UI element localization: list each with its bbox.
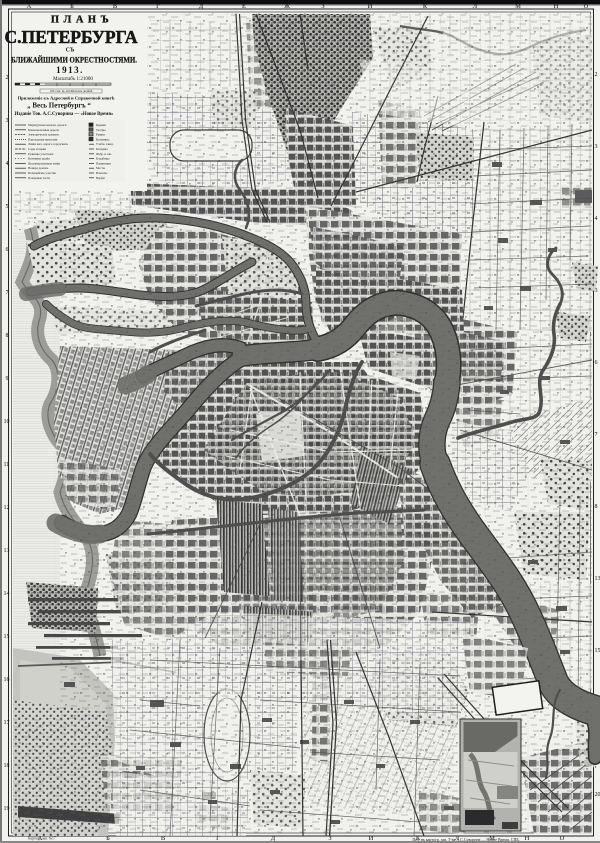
svg-text:17: 17 (4, 720, 10, 726)
svg-text:Театры: Театры (96, 128, 106, 132)
svg-text:О: О (584, 3, 589, 10)
svg-text:Кладбища: Кладбища (96, 157, 110, 161)
svg-text:4: 4 (6, 161, 9, 167)
svg-text:Верфи: Верфи (96, 176, 105, 180)
svg-text:7: 7 (6, 290, 9, 296)
svg-text:И: И (369, 835, 374, 842)
svg-text:Л: Л (473, 3, 478, 10)
svg-text:5: 5 (6, 204, 9, 210)
svg-text:Казармы: Казармы (96, 147, 108, 151)
svg-text:Фабр. и зав.: Фабр. и зав. (96, 152, 112, 156)
svg-text:100 саж. въ англійскомъ дюймѣ: 100 саж. въ англійскомъ дюймѣ (50, 89, 93, 93)
svg-text:К: К (423, 3, 428, 10)
svg-text:15: 15 (595, 648, 600, 654)
svg-text:Д: Д (199, 3, 204, 10)
svg-text:Проектированныя линіи: Проектированныя линіи (28, 161, 60, 165)
svg-text:Б: Б (70, 3, 74, 10)
svg-text:10: 10 (4, 419, 10, 425)
svg-text:Картогр. зав. №17: Картогр. зав. №17 (28, 837, 56, 841)
svg-text:6: 6 (6, 247, 9, 253)
svg-text:Линіи жел. дорогъ городскихъ: Линіи жел. дорогъ городскихъ (28, 142, 68, 146)
svg-text:1913.: 1913. (56, 65, 84, 75)
svg-text:2: 2 (6, 75, 9, 81)
svg-text:Границы участковъ: Границы участковъ (28, 152, 54, 156)
svg-text:Изданіе Тов. А.С.Суворина — «Н: Изданіе Тов. А.С.Суворина — «Новое Время… (15, 112, 114, 117)
svg-text:Вокзалы: Вокзалы (96, 171, 107, 175)
svg-text:Рынки: Рынки (96, 133, 105, 137)
svg-text:20: 20 (595, 792, 600, 798)
svg-text:Маршрутныя железн. дороги: Маршрутныя железн. дороги (28, 123, 67, 127)
svg-text:СЪ: СЪ (66, 48, 75, 54)
svg-text:„ Весь Петербургъ “: „ Весь Петербургъ “ (27, 102, 91, 110)
svg-text:Г: Г (156, 3, 160, 10)
svg-text:15: 15 (4, 634, 10, 640)
svg-text:13: 13 (4, 548, 10, 554)
svg-text:Казенныя зданія: Казенныя зданія (28, 157, 50, 161)
svg-text:Церкви: Церкви (96, 123, 106, 127)
svg-text:Памятники: Памятники (96, 161, 111, 165)
svg-text:8: 8 (595, 504, 598, 510)
svg-text:Больницы: Больницы (96, 137, 109, 141)
svg-text:13: 13 (595, 576, 600, 582)
svg-text:Сады и парки: Сады и парки (28, 147, 46, 151)
svg-text:8: 8 (6, 333, 9, 339)
svg-text:18: 18 (4, 763, 10, 769)
svg-text:А: А (27, 3, 32, 10)
svg-text:Пароходныя пристани: Пароходныя пристани (28, 137, 58, 141)
svg-text:Номера домовъ: Номера домовъ (28, 166, 49, 170)
svg-text:4: 4 (595, 216, 598, 222)
svg-text:Мосты: Мосты (96, 166, 105, 170)
svg-text:Масштабъ 1:21000: Масштабъ 1:21000 (53, 77, 93, 82)
svg-text:Пожарныя части: Пожарныя части (28, 176, 50, 180)
svg-text:И: И (368, 3, 373, 10)
svg-text:В: В (161, 835, 166, 842)
svg-text:6: 6 (595, 360, 598, 366)
svg-text:Приложеніе къ Адресной и Справ: Приложеніе къ Адресной и Справочной книг… (18, 96, 115, 101)
svg-text:9: 9 (6, 376, 9, 382)
svg-text:З: З (321, 3, 324, 10)
svg-text:Учебн. завед.: Учебн. завед. (96, 142, 114, 146)
svg-text:БЛИЖАЙШИМИ ОКРЕСТНОСТЯМИ.: БЛИЖАЙШИМИ ОКРЕСТНОСТЯМИ. (11, 55, 137, 65)
svg-text:12: 12 (4, 505, 10, 511)
svg-text:16: 16 (4, 677, 10, 683)
svg-text:Конножелезныя дороги: Конножелезныя дороги (28, 128, 59, 132)
svg-text:2: 2 (595, 72, 598, 78)
svg-text:М: М (515, 3, 521, 10)
svg-text:ПЛАНЪ: ПЛАНЪ (51, 15, 113, 26)
svg-text:Б: Б (106, 835, 110, 842)
svg-text:О: О (560, 835, 565, 842)
svg-text:Д: Д (271, 835, 276, 842)
svg-text:19: 19 (4, 806, 10, 812)
svg-text:14: 14 (4, 591, 10, 597)
svg-text:Электрическіе трамваи: Электрическіе трамваи (28, 133, 59, 137)
svg-text:З: З (328, 835, 331, 842)
svg-text:7: 7 (595, 432, 598, 438)
svg-text:3: 3 (595, 144, 598, 150)
svg-text:Н: Н (525, 835, 530, 842)
svg-text:Г: Г (216, 835, 220, 842)
svg-text:11: 11 (4, 462, 10, 468)
svg-text:3: 3 (6, 118, 9, 124)
svg-text:С.ПЕТЕРБУРГА: С.ПЕТЕРБУРГА (5, 27, 138, 47)
svg-text:Н: Н (554, 3, 559, 10)
svg-text:Е: Е (242, 3, 246, 10)
svg-text:В: В (113, 3, 118, 10)
svg-text:Полицейскіе участки: Полицейскіе участки (28, 171, 56, 175)
svg-text:Печ. въ картогр. зав. Т-ва А.С: Печ. въ картогр. зав. Т-ва А.С.Суворина … (412, 837, 519, 842)
svg-text:Ж: Ж (284, 3, 290, 10)
